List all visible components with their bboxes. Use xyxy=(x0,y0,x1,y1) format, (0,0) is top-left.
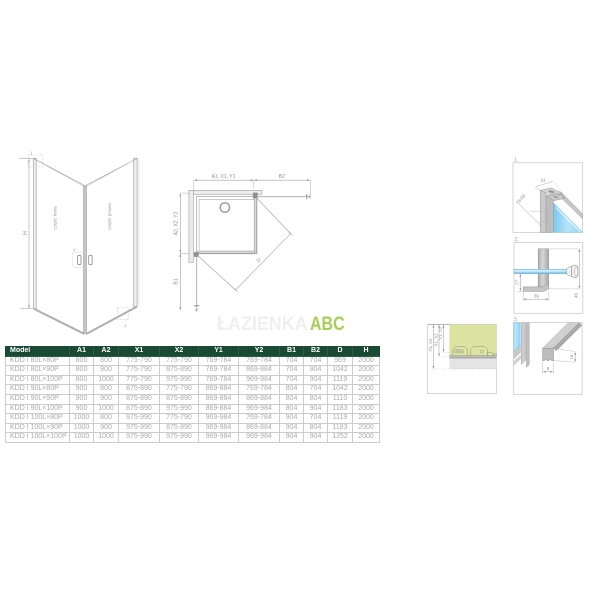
svg-text:39: 39 xyxy=(534,294,540,299)
svg-text:Y1, Y2: Y1, Y2 xyxy=(438,326,443,340)
svg-text:16: 16 xyxy=(569,354,574,360)
svg-text:B2: B2 xyxy=(279,174,285,180)
svg-text:7: 7 xyxy=(73,248,76,253)
svg-text:A2, X2, Y2: A2, X2, Y2 xyxy=(174,211,180,235)
svg-text:część prawa: część prawa xyxy=(107,203,113,230)
svg-text:8: 8 xyxy=(547,366,550,371)
svg-text:A1, A2: A1, A2 xyxy=(428,338,433,351)
svg-text:1: 1 xyxy=(124,323,127,328)
svg-text:część lewa: część lewa xyxy=(53,206,59,230)
svg-text:2.: 2. xyxy=(515,237,519,243)
svg-text:46: 46 xyxy=(573,293,578,299)
svg-text:H: H xyxy=(23,231,29,235)
svg-text:B1: B1 xyxy=(174,278,180,284)
svg-text:27: 27 xyxy=(514,279,519,285)
svg-text:A1, X1, Y1: A1, X1, Y1 xyxy=(212,174,236,180)
